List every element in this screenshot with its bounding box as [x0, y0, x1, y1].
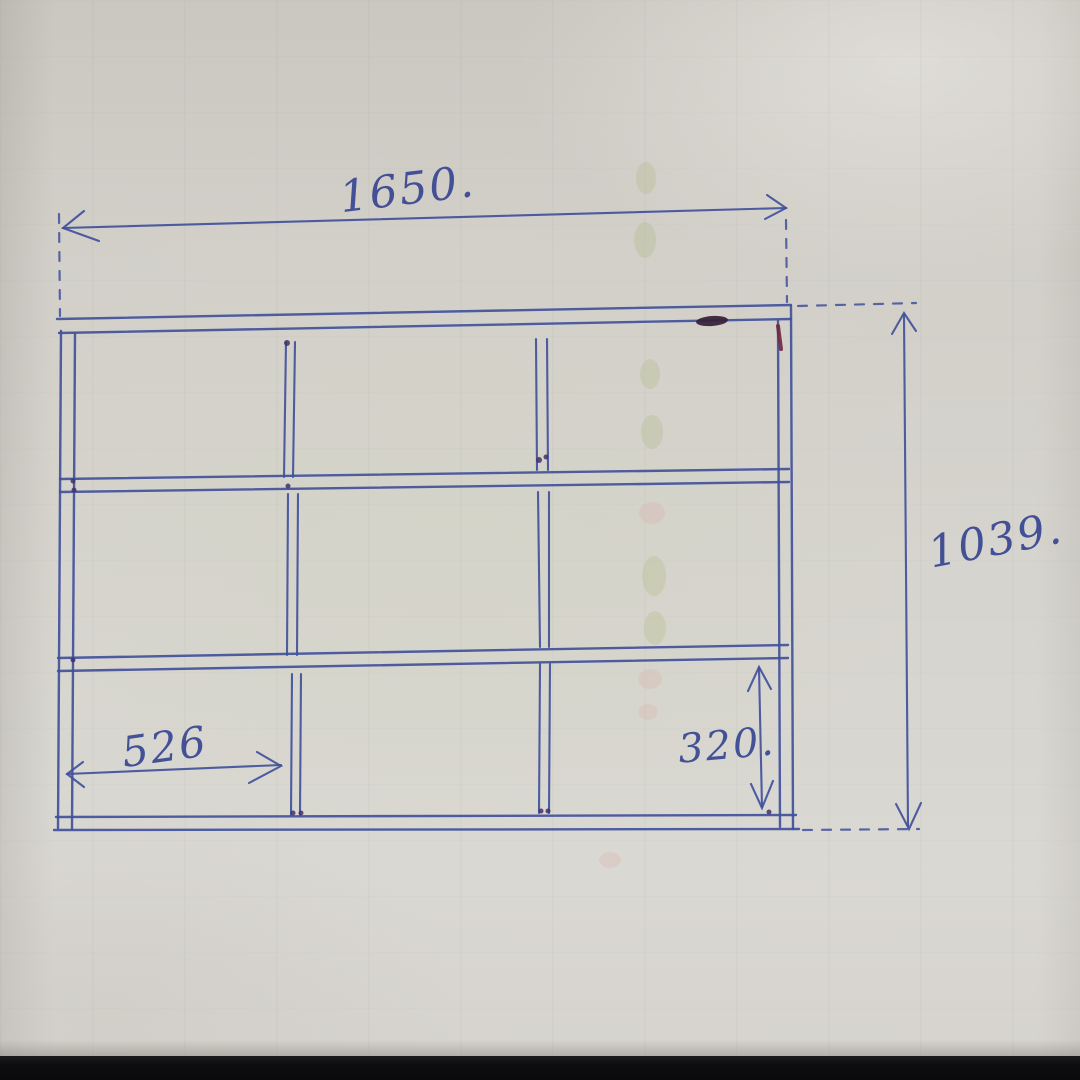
arrowhead-right-icon [765, 195, 786, 219]
arrowhead-right-icon [249, 752, 281, 783]
photographed-sketch: 1650. 1039. 526 320. [0, 0, 1080, 1080]
shelf-dividers [284, 339, 550, 815]
show-through-smudges [599, 162, 666, 868]
dimension-overall-height: 1039. [798, 303, 1067, 830]
dimension-overall-width: 1650. [59, 156, 787, 316]
arrowhead-left-icon [63, 211, 99, 241]
sketch-canvas: 1650. 1039. 526 320. [0, 0, 1080, 1080]
dimension-cell-width: 526 [67, 717, 281, 787]
dimension-cell-height: 320. [676, 667, 777, 808]
shelf-boards [58, 469, 789, 671]
dim-cell-height-label: 320. [676, 718, 777, 772]
dim-overall-width-label: 1650. [337, 156, 478, 223]
dim-overall-height-label: 1039. [924, 503, 1067, 579]
